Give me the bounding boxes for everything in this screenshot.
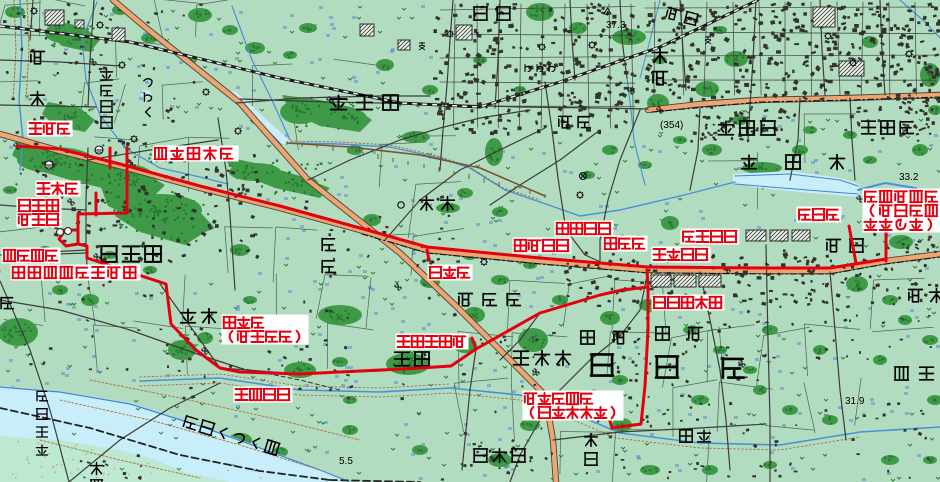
svg-text:31.9: 31.9 — [845, 396, 865, 407]
svg-text:(354): (354) — [660, 120, 683, 131]
svg-text:33.2: 33.2 — [899, 172, 919, 183]
svg-text:37.3: 37.3 — [606, 20, 626, 31]
svg-text:5.5: 5.5 — [339, 456, 353, 467]
